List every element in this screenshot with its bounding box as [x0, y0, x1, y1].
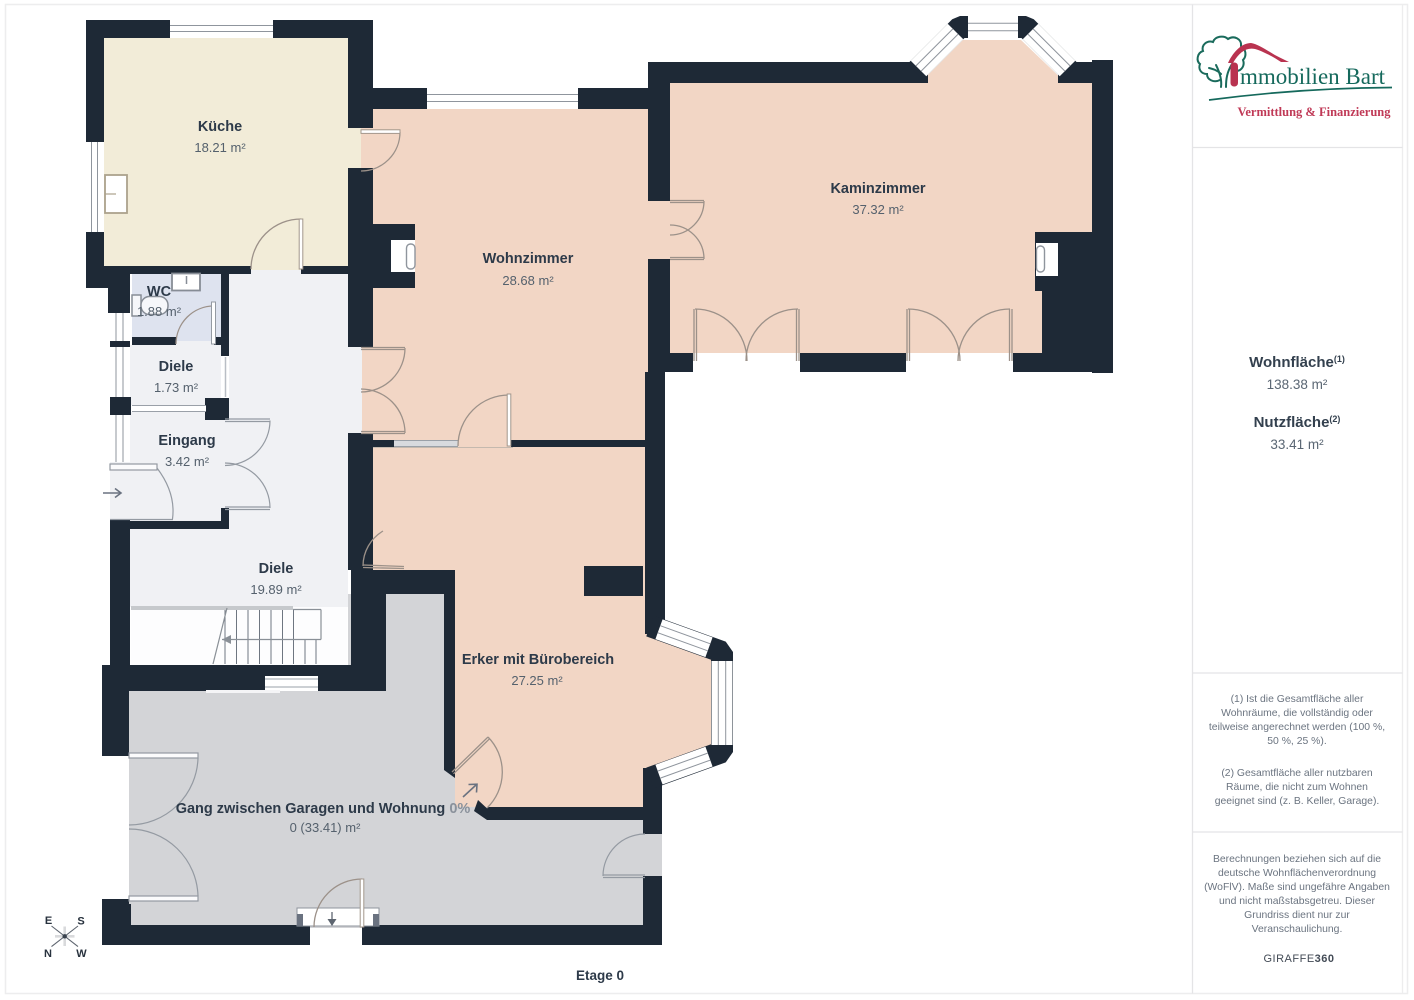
- svg-text:E: E: [45, 915, 52, 927]
- svg-text:Veranschaulichung.: Veranschaulichung.: [1252, 924, 1343, 935]
- svg-text:Eingang: Eingang: [158, 433, 215, 449]
- svg-text:138.38 m²: 138.38 m²: [1267, 377, 1328, 392]
- svg-text:(WoFlV). Maße sind ungefähre A: (WoFlV). Maße sind ungefähre Angaben: [1204, 882, 1390, 893]
- svg-text:(1) Ist die Gesamtfläche aller: (1) Ist die Gesamtfläche aller: [1231, 694, 1364, 705]
- svg-text:deutsche Wohnflächenverordnung: deutsche Wohnflächenverordnung: [1218, 868, 1376, 879]
- svg-text:Diele: Diele: [159, 359, 194, 375]
- svg-text:Wohnfläche(1): Wohnfläche(1): [1249, 354, 1345, 371]
- svg-text:Küche: Küche: [198, 119, 242, 135]
- svg-text:geeignet sind (z. B. Keller, G: geeignet sind (z. B. Keller, Garage).: [1215, 796, 1380, 807]
- svg-text:Vermittlung & Finanzierung: Vermittlung & Finanzierung: [1237, 105, 1391, 119]
- svg-text:19.89 m²: 19.89 m²: [250, 582, 302, 597]
- svg-text:28.68 m²: 28.68 m²: [502, 273, 554, 288]
- svg-text:Berechnungen beziehen sich auf: Berechnungen beziehen sich auf die: [1213, 854, 1381, 865]
- svg-text:Wohnräume, die vollständig ode: Wohnräume, die vollständig oder: [1221, 708, 1373, 719]
- svg-text:Räume, die nicht zum Wohnen: Räume, die nicht zum Wohnen: [1226, 782, 1368, 793]
- svg-text:18.21 m²: 18.21 m²: [194, 140, 246, 155]
- svg-text:Kaminzimmer: Kaminzimmer: [830, 181, 925, 197]
- svg-text:33.41 m²: 33.41 m²: [1270, 437, 1324, 452]
- svg-text:0 (33.41) m²: 0 (33.41) m²: [290, 820, 361, 835]
- svg-text:Etage 0: Etage 0: [576, 968, 624, 983]
- svg-text:Grundriss dient nur zur: Grundriss dient nur zur: [1244, 910, 1350, 921]
- svg-text:WC: WC: [147, 284, 172, 300]
- svg-text:(2) Gesamtfläche aller nutzbar: (2) Gesamtfläche aller nutzbaren: [1221, 768, 1373, 779]
- svg-text:37.32 m²: 37.32 m²: [852, 202, 904, 217]
- svg-text:Wohnzimmer: Wohnzimmer: [483, 251, 574, 267]
- svg-text:GIRAFFE360: GIRAFFE360: [1263, 953, 1334, 965]
- svg-text:teilweise angerechnet werden (: teilweise angerechnet werden (100 %,: [1209, 722, 1385, 733]
- svg-text:1.88 m²: 1.88 m²: [137, 304, 182, 319]
- svg-text:W: W: [76, 948, 87, 960]
- svg-text:Diele: Diele: [259, 561, 294, 577]
- svg-text:1.73 m²: 1.73 m²: [154, 380, 199, 395]
- svg-text:N: N: [44, 948, 52, 960]
- svg-text:3.42 m²: 3.42 m²: [165, 454, 210, 469]
- svg-text:27.25 m²: 27.25 m²: [511, 673, 563, 688]
- svg-text:Gang zwischen Garagen und Wohn: Gang zwischen Garagen und Wohnung 0%: [176, 801, 471, 817]
- svg-text:Nutzfläche(2): Nutzfläche(2): [1254, 414, 1341, 431]
- svg-text:Erker mit Bürobereich: Erker mit Bürobereich: [462, 652, 614, 668]
- svg-text:und nicht maßstabsgetreu. Dies: und nicht maßstabsgetreu. Dieser: [1219, 896, 1375, 907]
- svg-text:50 %, 25 %).: 50 %, 25 %).: [1267, 736, 1327, 747]
- svg-text:mmobilien Bart: mmobilien Bart: [1240, 64, 1386, 89]
- svg-text:S: S: [77, 916, 84, 928]
